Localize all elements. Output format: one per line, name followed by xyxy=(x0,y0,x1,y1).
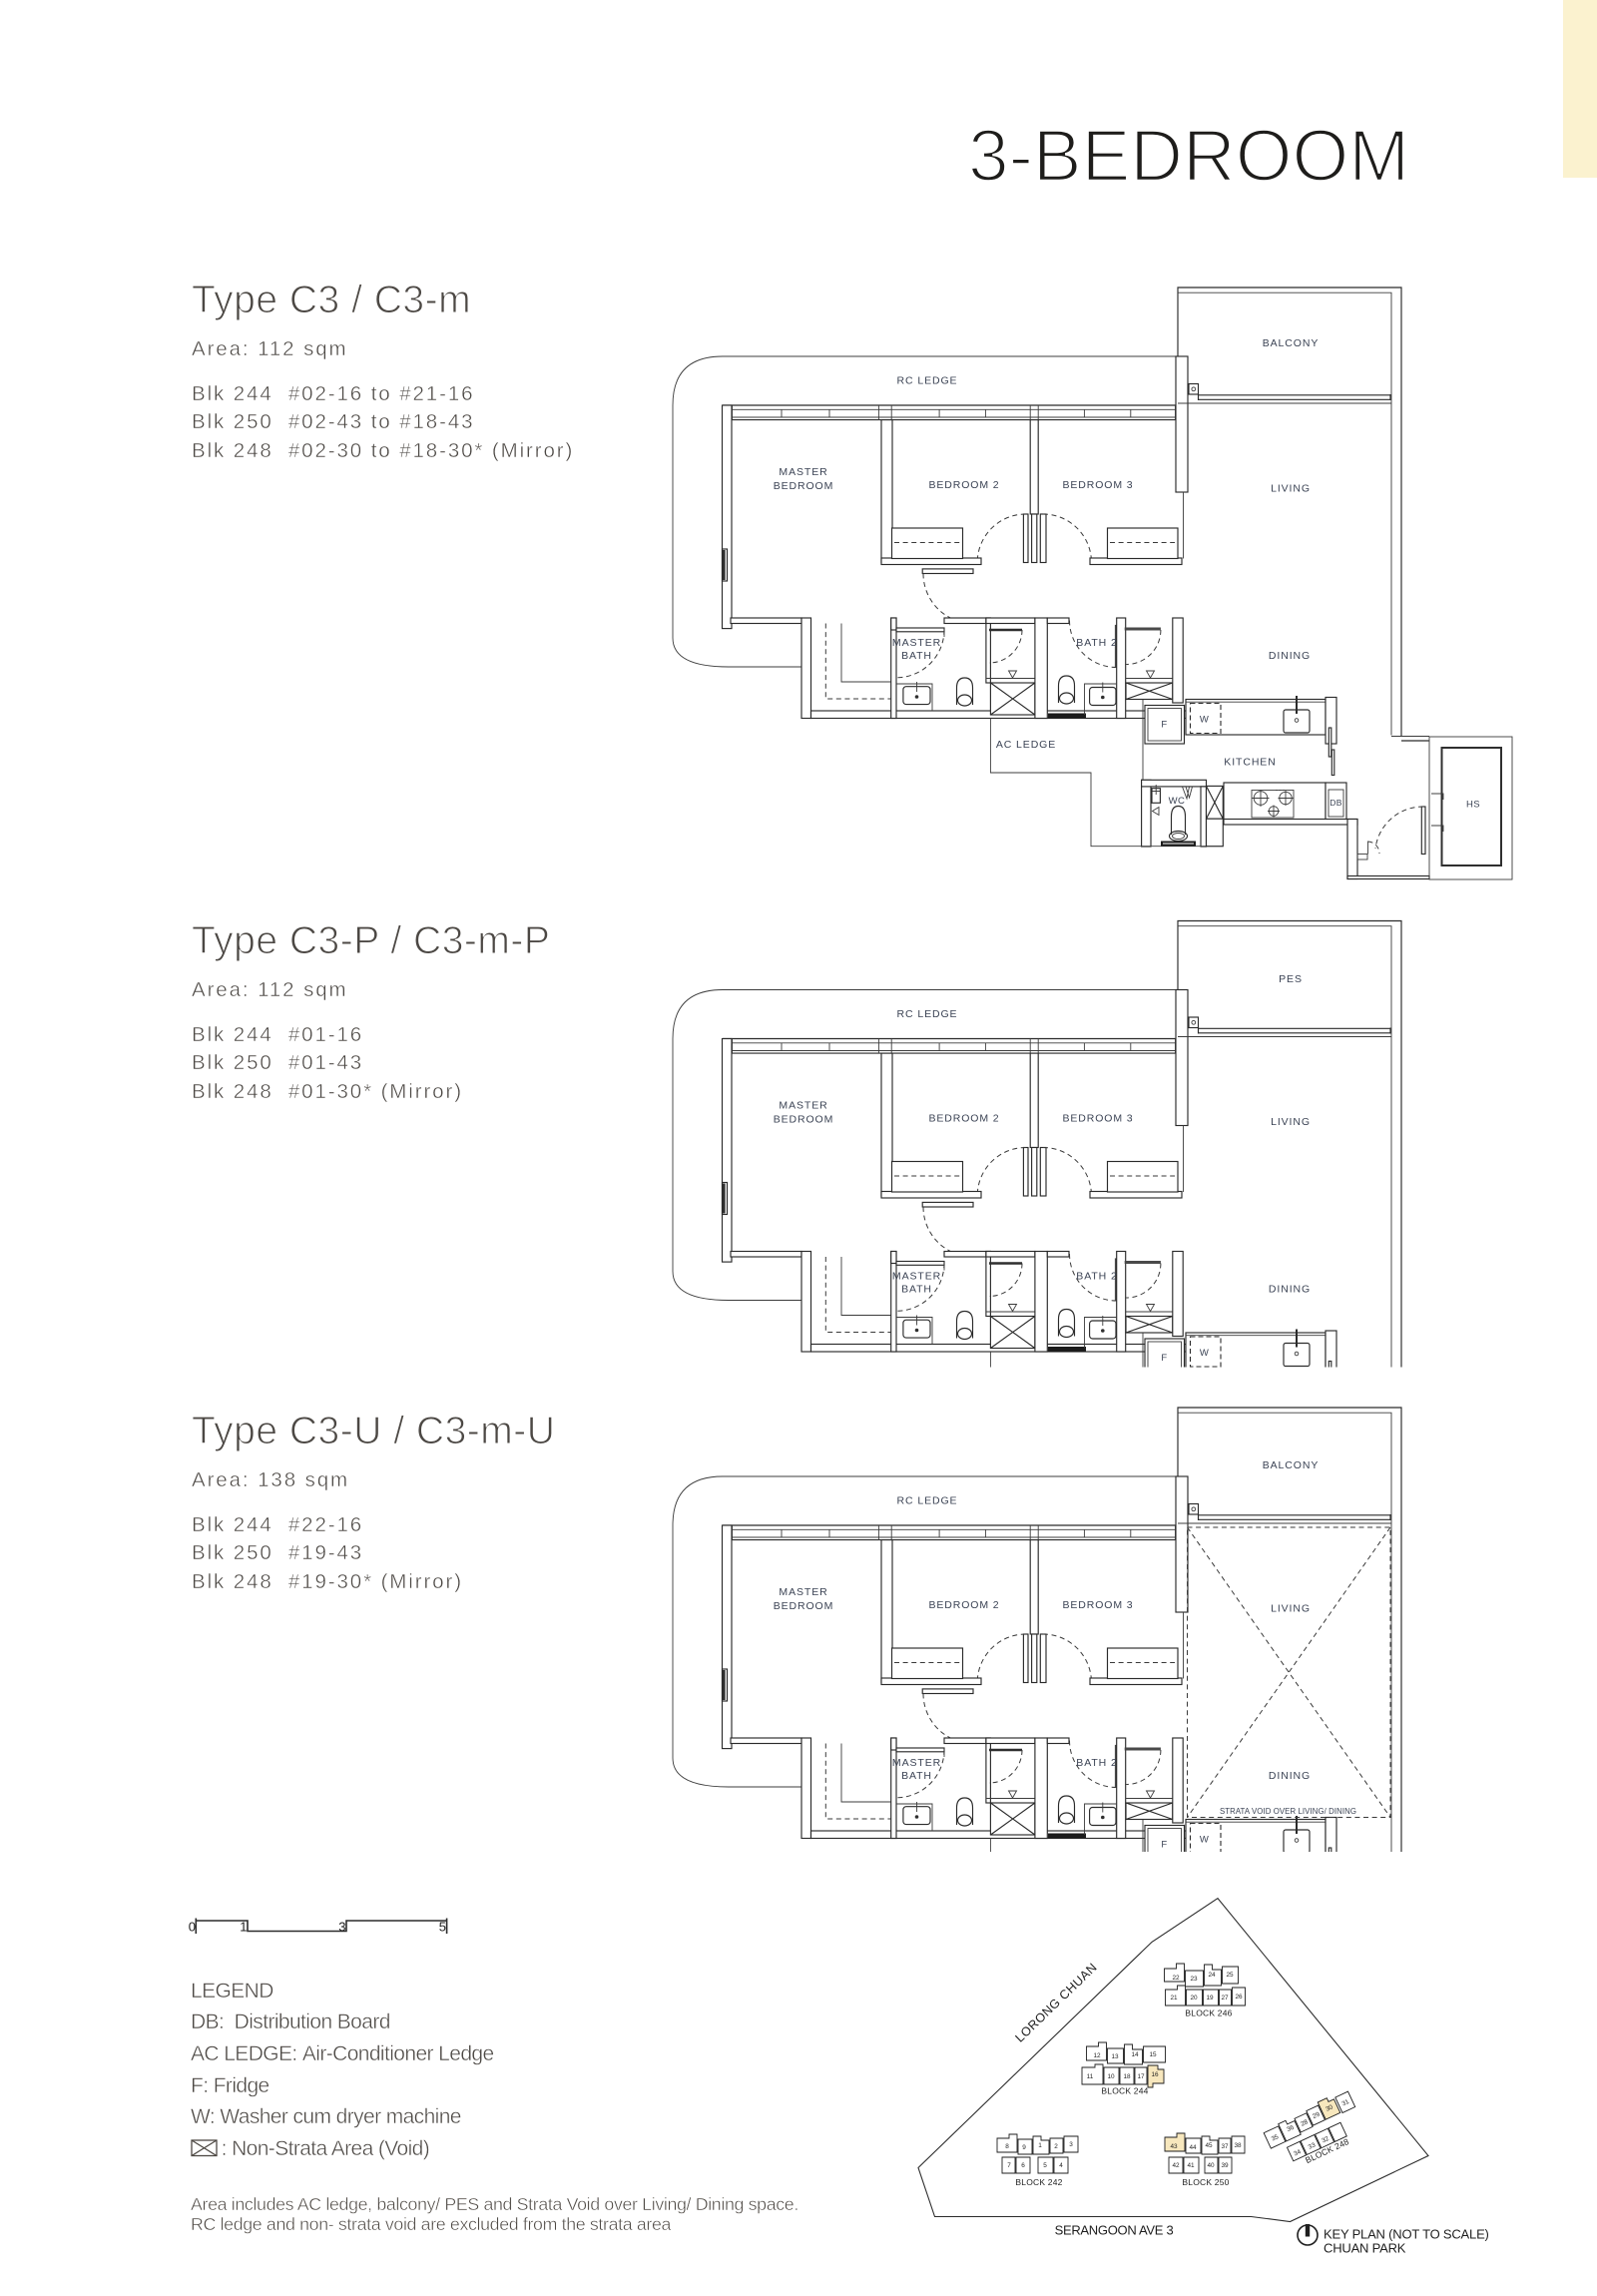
svg-text:1: 1 xyxy=(240,1920,247,1935)
svg-text:44: 44 xyxy=(1189,2144,1197,2151)
svg-text:39: 39 xyxy=(1221,2162,1229,2169)
svg-text:22: 22 xyxy=(1172,1975,1180,1982)
svg-text:PES: PES xyxy=(1279,973,1303,985)
svg-text:42: 42 xyxy=(1172,2162,1180,2169)
svg-text:20: 20 xyxy=(1190,1995,1198,2002)
svg-text:25: 25 xyxy=(1226,1972,1234,1979)
svg-text:3: 3 xyxy=(338,1920,345,1935)
svg-text:26: 26 xyxy=(1235,1994,1243,2001)
svg-text:23: 23 xyxy=(1190,1976,1198,1983)
svg-text:19: 19 xyxy=(1206,1995,1214,2002)
svg-text:8: 8 xyxy=(1005,2143,1009,2150)
svg-text:24: 24 xyxy=(1208,1972,1216,1979)
svg-text:40: 40 xyxy=(1207,2162,1215,2169)
svg-text:45: 45 xyxy=(1205,2142,1213,2149)
svg-text:17: 17 xyxy=(1137,2073,1145,2080)
svg-text:2: 2 xyxy=(1054,2143,1058,2150)
svg-text:15: 15 xyxy=(1149,2051,1157,2058)
svg-text:9: 9 xyxy=(1022,2144,1026,2151)
svg-text:43: 43 xyxy=(1170,2143,1178,2150)
svg-text:14: 14 xyxy=(1131,2051,1139,2058)
svg-text:BALCONY: BALCONY xyxy=(1263,1459,1319,1471)
svg-text:10: 10 xyxy=(1107,2073,1115,2080)
svg-text:5: 5 xyxy=(439,1920,446,1935)
svg-text:13: 13 xyxy=(1111,2053,1119,2060)
svg-text:BLOCK 250: BLOCK 250 xyxy=(1182,2177,1229,2187)
svg-text:18: 18 xyxy=(1123,2073,1131,2080)
svg-text:CHUAN PARK: CHUAN PARK xyxy=(1324,2241,1406,2256)
svg-text:11: 11 xyxy=(1087,2073,1094,2080)
svg-text:16: 16 xyxy=(1151,2071,1159,2078)
svg-text:12: 12 xyxy=(1093,2052,1101,2059)
svg-text:KEY PLAN (NOT TO SCALE): KEY PLAN (NOT TO SCALE) xyxy=(1324,2227,1489,2242)
svg-text:3: 3 xyxy=(1069,2141,1073,2148)
svg-text:27: 27 xyxy=(1221,1995,1229,2002)
svg-text:37: 37 xyxy=(1221,2143,1229,2150)
svg-text:BLOCK 242: BLOCK 242 xyxy=(1015,2177,1062,2187)
svg-text:4: 4 xyxy=(1059,2162,1063,2169)
svg-text:1: 1 xyxy=(1038,2142,1042,2149)
svg-text:41: 41 xyxy=(1187,2162,1195,2169)
svg-text:7: 7 xyxy=(1007,2162,1011,2169)
svg-text:SERANGOON AVE 3: SERANGOON AVE 3 xyxy=(1055,2223,1174,2238)
svg-text:STRATA VOID OVER LIVING/ DININ: STRATA VOID OVER LIVING/ DINING xyxy=(1220,1807,1356,1816)
svg-text:21: 21 xyxy=(1170,1995,1178,2002)
svg-text:0: 0 xyxy=(189,1920,196,1935)
svg-text:38: 38 xyxy=(1234,2142,1242,2149)
svg-text:BLOCK 244: BLOCK 244 xyxy=(1101,2086,1148,2096)
svg-text:6: 6 xyxy=(1021,2162,1025,2169)
svg-text:BALCONY: BALCONY xyxy=(1263,337,1319,349)
svg-text:LORONG CHUAN: LORONG CHUAN xyxy=(1012,1961,1099,2045)
svg-text:BLOCK 246: BLOCK 246 xyxy=(1185,2009,1232,2018)
svg-text:5: 5 xyxy=(1043,2162,1047,2169)
